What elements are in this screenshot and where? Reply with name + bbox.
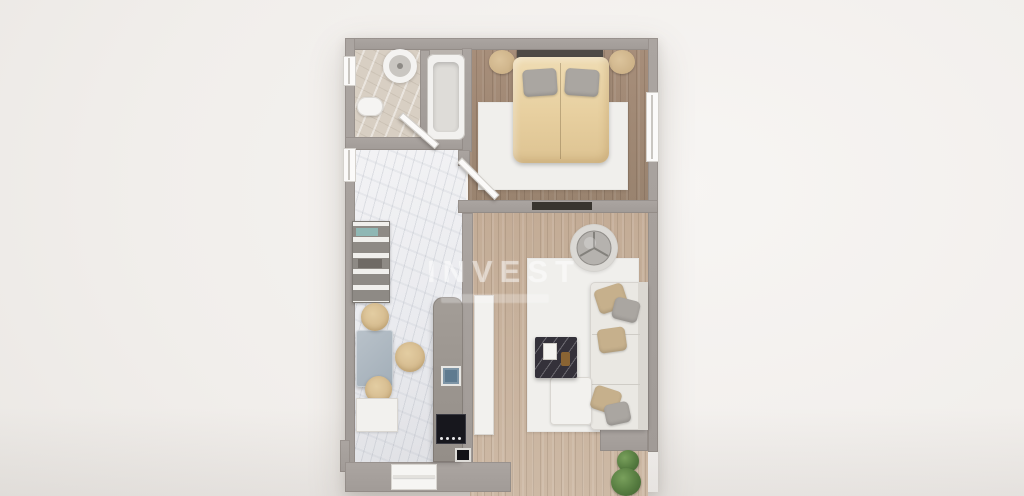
floorplan-render: INVEST [0,0,1024,496]
bathtub [427,54,465,140]
sofa-cushion-3 [596,326,627,354]
nightstand-left [489,50,515,74]
bathroom-sink [383,49,417,83]
cooktop-knobs [440,437,443,440]
bed-pillow-left [522,68,558,97]
bed-pillow-right [564,68,600,97]
wall-top [345,38,658,50]
window-frame-line [348,58,350,84]
oven [455,448,471,462]
bedroom-window [646,92,659,162]
shelving-unit [352,221,390,303]
bathroom-window [343,56,356,86]
pouf-1 [361,303,389,331]
plant-large [611,468,641,496]
sideboard [474,295,494,435]
coffee-table [535,337,577,378]
sink-drain [397,63,403,69]
window-frame-line [348,150,350,180]
toilet [357,97,383,116]
watermark-text: INVEST [427,254,581,290]
sink-bowl [445,370,457,382]
nightstand-right [609,50,635,74]
entrance-door [391,464,437,490]
candles [543,343,557,360]
watermark-subtitle-bar [441,294,549,303]
wall-stub-bottom-right [600,427,648,451]
shelf-teal-box [356,228,378,236]
duvet-center-seam [560,63,561,159]
cooktop [436,414,466,444]
kitchen-sink [441,366,461,386]
bedroom-tv-console [532,202,592,210]
white-desk [356,398,398,432]
pouf-2 [395,342,425,372]
entrance-door-leaf-line [393,475,435,478]
ottoman [550,377,592,425]
window-frame-line [651,95,653,159]
bathtub-basin [433,62,459,132]
decor-bottle [561,352,570,366]
round-armchair [576,230,612,266]
shelf-dark-box [358,259,382,268]
hallway-window [343,148,356,182]
